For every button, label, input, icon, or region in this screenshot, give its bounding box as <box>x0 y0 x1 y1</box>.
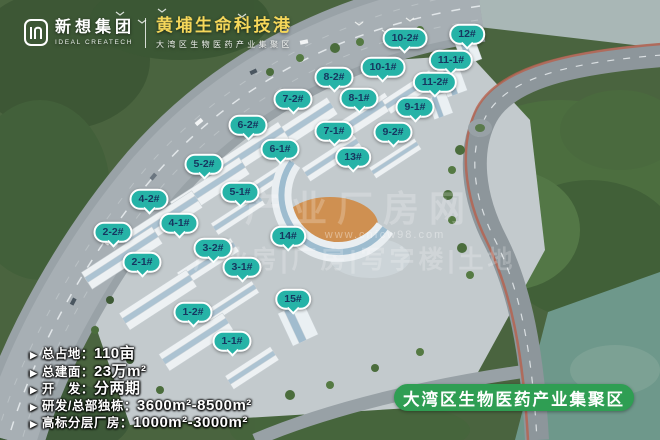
stat-value: 3600m²-8500m² <box>137 397 252 414</box>
logo-name-en: IDEAL CREATECH <box>55 39 135 46</box>
stat-label: 总占地： <box>42 343 94 362</box>
building-marker-5-2: 5-2# <box>184 154 223 175</box>
bullet-icon: ▶ <box>30 403 37 412</box>
bullet-icon: ▶ <box>30 351 37 360</box>
building-marker-7-2: 7-2# <box>273 89 312 110</box>
header: 新想集团 IDEAL CREATECH 黄埔生命科技港 大湾区生物医药产业集聚区 <box>24 16 293 50</box>
building-marker-8-1: 8-1# <box>339 88 378 109</box>
stat-row: ▶研发/总部独栋：3600m²-8500m² <box>30 395 252 413</box>
building-marker-3-2: 3-2# <box>193 238 232 259</box>
stat-label: 高标分层厂房： <box>42 412 133 431</box>
logo-icon <box>24 19 48 46</box>
logo-name-cn: 新想集团 <box>55 19 135 37</box>
building-marker-14: 14# <box>270 226 306 247</box>
stats-list: ▶总占地：110亩▶总建面：23万m²▶开 发：分两期▶研发/总部独栋：3600… <box>30 342 252 430</box>
stat-row: ▶总建面：23万m² <box>30 360 252 378</box>
building-marker-10-1: 10-1# <box>361 57 406 78</box>
building-marker-2-1: 2-1# <box>122 252 161 273</box>
poster: 产业厂房网 www.cnfcw98.com 产业房|厂房|写字楼|土地 新想集团… <box>0 0 660 440</box>
bullet-icon: ▶ <box>30 420 37 429</box>
building-marker-7-1: 7-1# <box>314 121 353 142</box>
building-marker-1-2: 1-2# <box>173 302 212 323</box>
building-marker-9-2: 9-2# <box>373 122 412 143</box>
building-marker-4-2: 4-2# <box>129 189 168 210</box>
project-title-block: 黄埔生命科技港 大湾区生物医药产业集聚区 <box>156 16 293 50</box>
building-marker-5-1: 5-1# <box>220 182 259 203</box>
building-marker-2-2: 2-2# <box>93 222 132 243</box>
stat-row: ▶总占地：110亩 <box>30 342 252 360</box>
stat-row: ▶高标分层厂房：1000m²-3000m² <box>30 412 252 430</box>
bullet-icon: ▶ <box>30 369 37 378</box>
building-marker-4-1: 4-1# <box>159 213 198 234</box>
building-marker-12: 12# <box>449 24 485 45</box>
stat-label: 研发/总部独栋： <box>42 395 137 414</box>
header-divider <box>145 18 146 48</box>
stat-label: 总建面： <box>42 361 94 380</box>
footer-banner: 大湾区生物医药产业集聚区 <box>394 384 634 411</box>
building-marker-10-2: 10-2# <box>383 28 428 49</box>
building-marker-6-1: 6-1# <box>260 139 299 160</box>
project-title: 黄埔生命科技港 <box>156 16 293 36</box>
project-subtitle: 大湾区生物医药产业集聚区 <box>156 39 293 50</box>
building-marker-13: 13# <box>335 147 371 168</box>
logo-text: 新想集团 IDEAL CREATECH <box>55 19 135 46</box>
company-logo: 新想集团 IDEAL CREATECH <box>24 19 135 46</box>
bullet-icon: ▶ <box>30 386 37 395</box>
building-marker-15: 15# <box>275 289 311 310</box>
building-marker-9-1: 9-1# <box>395 97 434 118</box>
building-marker-3-1: 3-1# <box>222 257 261 278</box>
building-marker-6-2: 6-2# <box>228 115 267 136</box>
building-marker-11-1: 11-1# <box>429 50 473 71</box>
building-marker-11-2: 11-2# <box>413 72 457 93</box>
building-marker-8-2: 8-2# <box>314 67 353 88</box>
stat-value: 1000m²-3000m² <box>133 414 248 431</box>
